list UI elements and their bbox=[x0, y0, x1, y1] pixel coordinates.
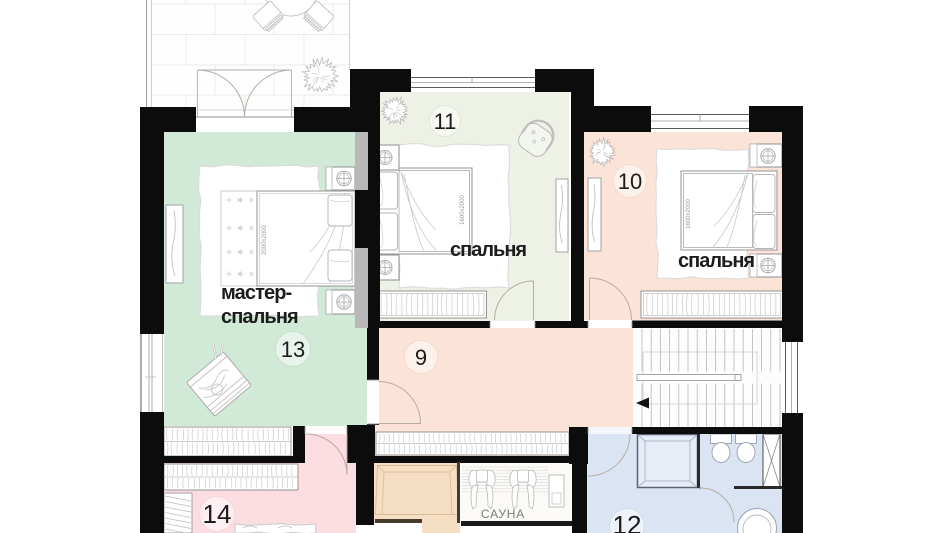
svg-text:мастер-: мастер- bbox=[221, 282, 292, 304]
svg-text:1600x2000: 1600x2000 bbox=[686, 198, 692, 228]
svg-text:САУНА: САУНА bbox=[481, 507, 525, 521]
svg-text:10: 10 bbox=[618, 169, 642, 194]
svg-text:спальня: спальня bbox=[450, 239, 526, 261]
svg-text:спальня: спальня bbox=[678, 250, 754, 272]
svg-text:13: 13 bbox=[281, 337, 305, 362]
svg-text:2000x2000: 2000x2000 bbox=[262, 224, 268, 254]
svg-text:14: 14 bbox=[203, 499, 232, 529]
svg-text:11: 11 bbox=[434, 109, 457, 134]
svg-text:спальня: спальня bbox=[221, 306, 298, 328]
svg-text:1600x2000: 1600x2000 bbox=[460, 194, 466, 224]
svg-text:9: 9 bbox=[415, 345, 427, 370]
svg-text:12: 12 bbox=[613, 510, 642, 533]
